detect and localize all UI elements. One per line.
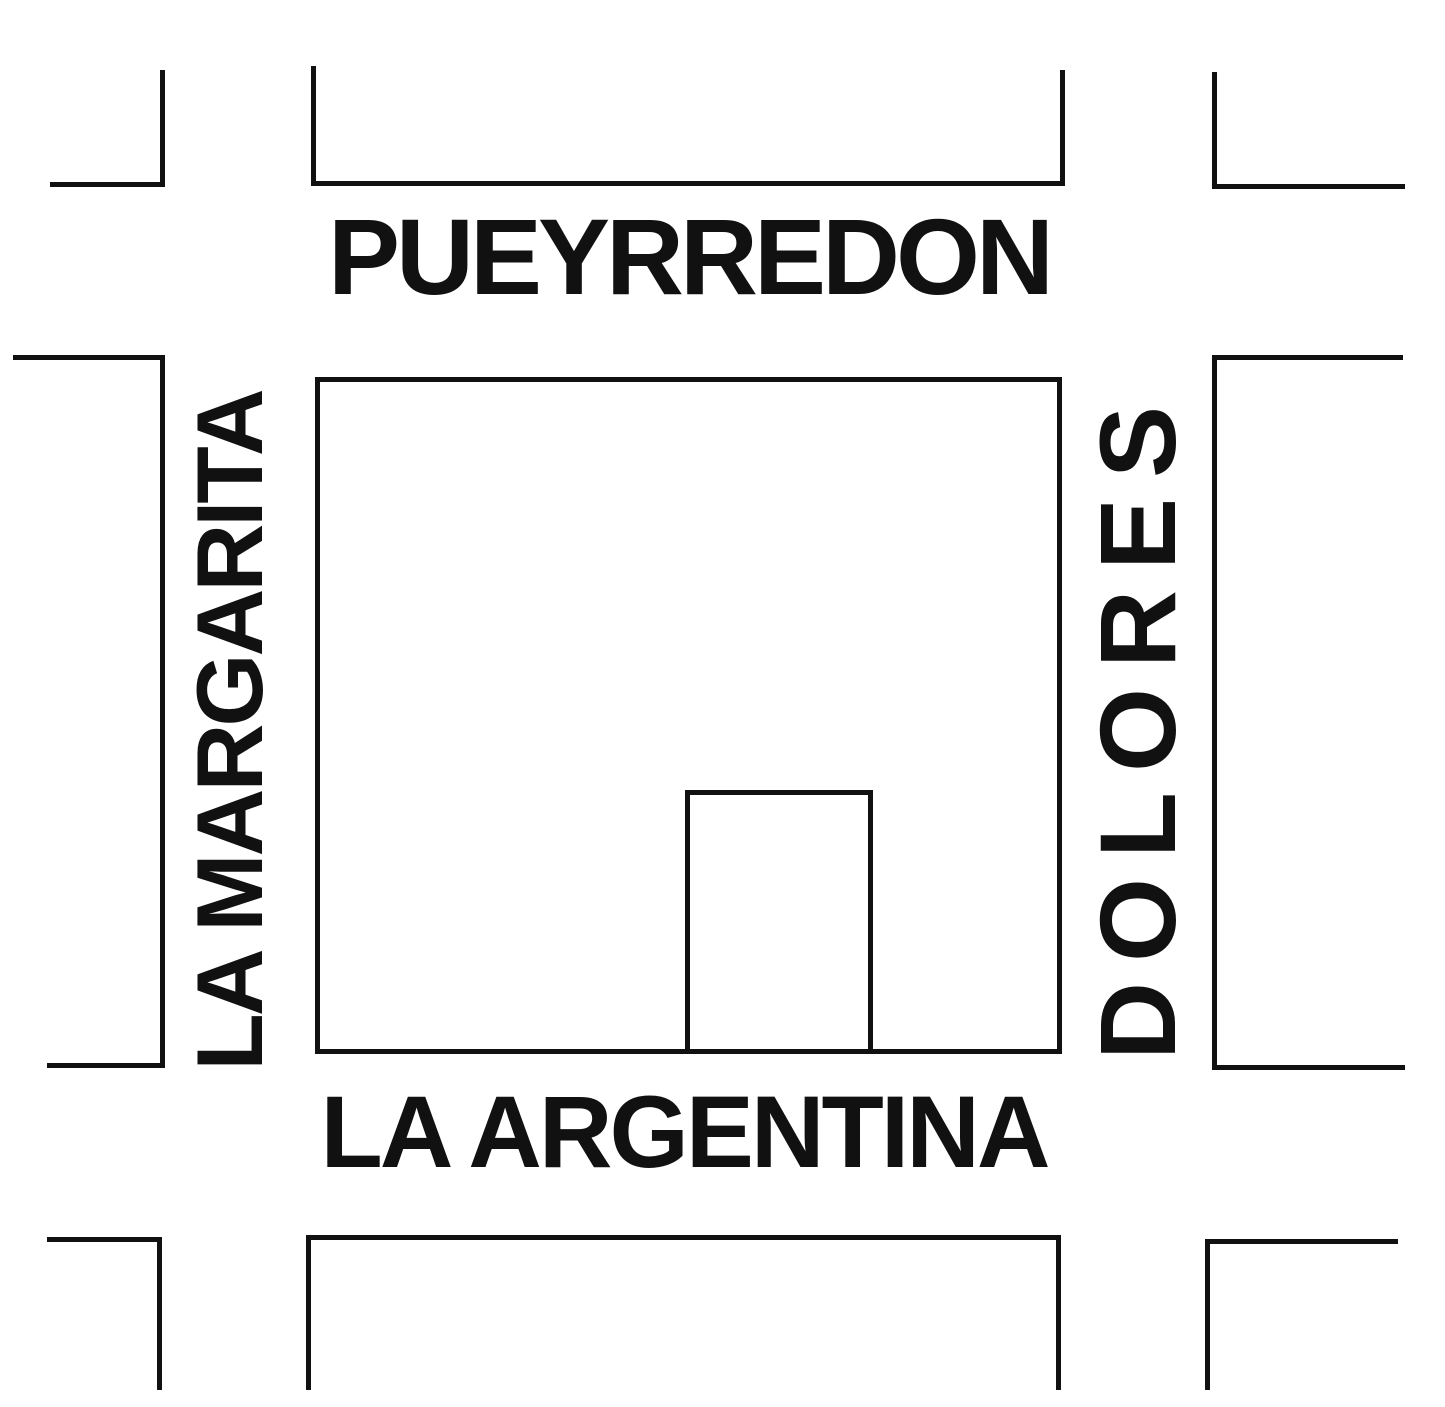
street-label-dolores: DOLORES [1072,373,1202,1073]
block-edge [306,1235,311,1390]
street-label-la-argentina: LA ARGENTINA [310,1075,1058,1190]
block-edge [1056,1235,1061,1390]
block-edge [1212,72,1217,189]
block-edge [47,1237,162,1242]
block-edge [1205,1239,1398,1244]
block-edge [306,1235,1061,1240]
block-edge [13,355,165,360]
block-edge [1212,355,1217,1070]
street-label-pueyrredon: PUEYRREDON [313,196,1065,316]
block-edge [47,1063,165,1068]
block-edge [1060,70,1065,186]
block-edge [311,66,316,186]
block-edge [1212,355,1403,360]
block-edge [1205,1239,1210,1390]
block-edge [1212,184,1405,189]
block-edge [50,182,165,187]
block-edge [157,1237,162,1390]
block-edge [311,181,1065,186]
block-edge [1212,1065,1405,1070]
block-edge [160,70,165,187]
street-map: PUEYRREDON LA ARGENTINA LA MARGARITA DOL… [0,0,1445,1407]
street-label-la-margarita: LA MARGARITA [165,381,295,1081]
building-lot [685,790,873,1049]
